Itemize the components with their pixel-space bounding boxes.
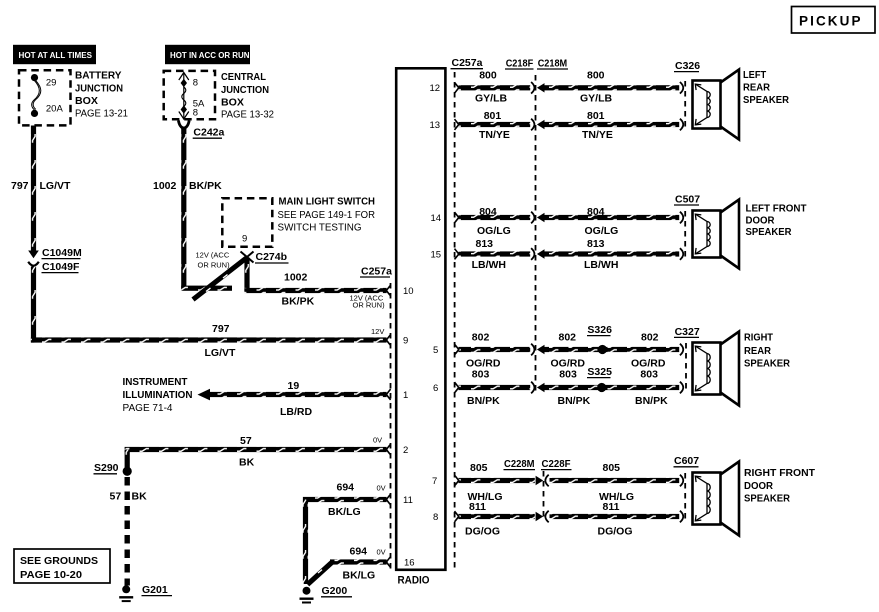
svg-text:C607: C607 xyxy=(674,455,699,467)
svg-text:7: 7 xyxy=(432,476,437,487)
svg-text:C218F: C218F xyxy=(506,57,534,69)
svg-text:SEE GROUNDS: SEE GROUNDS xyxy=(20,555,98,567)
svg-text:LG/VT: LG/VT xyxy=(40,180,72,192)
svg-text:INSTRUMENT: INSTRUMENT xyxy=(123,376,189,388)
svg-text:S325: S325 xyxy=(587,366,612,378)
svg-text:HOT AT ALL TIMES: HOT AT ALL TIMES xyxy=(19,51,93,60)
svg-text:9: 9 xyxy=(242,233,247,244)
svg-text:2: 2 xyxy=(403,445,408,456)
svg-text:GY/LB: GY/LB xyxy=(580,92,613,104)
svg-text:805: 805 xyxy=(470,462,488,474)
svg-text:SPEAKER: SPEAKER xyxy=(744,492,790,504)
svg-text:C274b: C274b xyxy=(256,251,288,263)
svg-text:OG/LG: OG/LG xyxy=(585,225,619,237)
svg-text:DOOR: DOOR xyxy=(744,480,773,492)
svg-text:MAIN LIGHT SWITCH: MAIN LIGHT SWITCH xyxy=(279,195,376,207)
svg-text:HOT IN ACC OR RUN: HOT IN ACC OR RUN xyxy=(170,51,250,60)
svg-text:CENTRAL: CENTRAL xyxy=(221,71,267,83)
svg-text:800: 800 xyxy=(587,70,605,82)
svg-text:BOX: BOX xyxy=(75,95,98,107)
svg-text:BN/PK: BN/PK xyxy=(558,395,591,407)
svg-text:801: 801 xyxy=(484,110,502,122)
svg-text:JUNCTION: JUNCTION xyxy=(221,84,269,96)
svg-text:BK/PK: BK/PK xyxy=(282,296,315,308)
svg-text:C257a: C257a xyxy=(452,57,483,69)
svg-text:G200: G200 xyxy=(322,585,348,597)
svg-text:LG/VT: LG/VT xyxy=(205,347,237,359)
svg-text:1: 1 xyxy=(403,390,408,401)
svg-text:BK: BK xyxy=(239,457,255,469)
svg-text:BK: BK xyxy=(132,490,148,502)
svg-text:SPEAKER: SPEAKER xyxy=(744,358,790,370)
svg-text:19: 19 xyxy=(288,380,300,392)
svg-text:GY/LB: GY/LB xyxy=(475,92,508,104)
svg-text:C242a: C242a xyxy=(193,126,224,138)
svg-text:RIGHT FRONT: RIGHT FRONT xyxy=(744,467,816,479)
svg-text:PAGE 13-32: PAGE 13-32 xyxy=(221,109,274,120)
svg-text:LB/WH: LB/WH xyxy=(472,259,506,271)
svg-text:797: 797 xyxy=(212,323,230,335)
svg-text:12: 12 xyxy=(430,83,441,94)
svg-text:14: 14 xyxy=(431,213,442,224)
svg-text:BN/PK: BN/PK xyxy=(467,395,500,407)
svg-text:S326: S326 xyxy=(587,324,612,336)
svg-text:57: 57 xyxy=(240,435,252,447)
svg-text:6: 6 xyxy=(433,383,438,394)
svg-text:0V: 0V xyxy=(373,435,382,444)
svg-text:10: 10 xyxy=(403,286,414,297)
svg-text:20A: 20A xyxy=(46,104,64,115)
svg-text:LEFT: LEFT xyxy=(743,69,767,81)
svg-text:C1049F: C1049F xyxy=(42,261,80,273)
svg-text:REAR: REAR xyxy=(744,345,771,357)
svg-text:8: 8 xyxy=(193,107,198,118)
svg-text:797: 797 xyxy=(11,180,29,192)
svg-text:C228M: C228M xyxy=(504,458,535,470)
svg-text:694: 694 xyxy=(337,481,355,493)
svg-text:LB/WH: LB/WH xyxy=(584,259,618,271)
svg-text:PICKUP: PICKUP xyxy=(799,13,863,28)
svg-text:C1049M: C1049M xyxy=(42,247,82,259)
svg-text:803: 803 xyxy=(559,369,577,381)
svg-text:C507: C507 xyxy=(675,193,700,205)
svg-text:57: 57 xyxy=(110,490,122,502)
svg-text:DG/OG: DG/OG xyxy=(465,526,500,538)
svg-text:13: 13 xyxy=(430,120,441,131)
svg-text:LB/RD: LB/RD xyxy=(280,406,312,418)
svg-text:802: 802 xyxy=(559,331,577,343)
svg-text:805: 805 xyxy=(603,462,621,474)
svg-text:804: 804 xyxy=(587,206,605,218)
svg-text:11: 11 xyxy=(403,495,413,506)
svg-text:0V: 0V xyxy=(377,483,386,492)
svg-text:PAGE 71-4: PAGE 71-4 xyxy=(123,403,173,414)
svg-text:12V: 12V xyxy=(371,327,384,336)
svg-text:C327: C327 xyxy=(675,326,700,338)
svg-text:16: 16 xyxy=(404,557,415,568)
svg-text:802: 802 xyxy=(472,331,490,343)
svg-text:811: 811 xyxy=(603,501,620,513)
svg-text:8: 8 xyxy=(433,512,438,523)
svg-text:813: 813 xyxy=(587,238,605,250)
svg-text:BK/LG: BK/LG xyxy=(328,506,361,518)
svg-text:803: 803 xyxy=(640,369,658,381)
svg-text:12V (ACC: 12V (ACC xyxy=(196,250,230,259)
svg-text:BK/PK: BK/PK xyxy=(189,180,222,192)
svg-text:9: 9 xyxy=(403,335,408,346)
svg-text:OG/LG: OG/LG xyxy=(477,225,511,237)
svg-text:RADIO: RADIO xyxy=(398,574,430,586)
svg-text:TN/YE: TN/YE xyxy=(479,129,510,141)
svg-text:804: 804 xyxy=(479,206,497,218)
svg-text:SPEAKER: SPEAKER xyxy=(746,226,792,238)
svg-text:S290: S290 xyxy=(94,462,119,474)
svg-text:803: 803 xyxy=(472,369,490,381)
svg-text:JUNCTION: JUNCTION xyxy=(75,83,123,95)
svg-text:SWITCH TESTING: SWITCH TESTING xyxy=(278,223,362,234)
svg-text:813: 813 xyxy=(476,238,494,250)
svg-text:C218M: C218M xyxy=(538,57,568,69)
svg-text:694: 694 xyxy=(350,546,368,558)
svg-text:800: 800 xyxy=(479,70,497,82)
svg-text:DOOR: DOOR xyxy=(746,214,775,226)
svg-text:OR RUN): OR RUN) xyxy=(198,260,231,269)
svg-text:8: 8 xyxy=(193,77,198,88)
svg-text:5: 5 xyxy=(433,345,438,356)
svg-text:C228F: C228F xyxy=(542,458,572,470)
svg-text:15: 15 xyxy=(431,249,442,260)
svg-text:0V: 0V xyxy=(377,548,386,557)
svg-text:C257a: C257a xyxy=(361,265,392,277)
svg-text:OR RUN): OR RUN) xyxy=(353,301,386,310)
svg-text:ILLUMINATION: ILLUMINATION xyxy=(123,389,193,401)
svg-text:SPEAKER: SPEAKER xyxy=(743,94,789,106)
svg-text:LEFT FRONT: LEFT FRONT xyxy=(746,202,808,214)
svg-text:802: 802 xyxy=(641,331,659,343)
svg-text:TN/YE: TN/YE xyxy=(582,129,613,141)
svg-text:REAR: REAR xyxy=(743,81,770,93)
svg-text:PAGE 10-20: PAGE 10-20 xyxy=(20,569,82,581)
svg-text:1002: 1002 xyxy=(284,271,308,283)
svg-text:DG/OG: DG/OG xyxy=(598,526,633,538)
svg-text:BOX: BOX xyxy=(221,96,244,108)
svg-text:G201: G201 xyxy=(142,584,168,596)
svg-text:811: 811 xyxy=(469,501,486,513)
svg-text:C326: C326 xyxy=(675,60,700,72)
svg-text:BATTERY: BATTERY xyxy=(75,70,122,82)
svg-text:PAGE 13-21: PAGE 13-21 xyxy=(75,108,128,119)
svg-text:801: 801 xyxy=(587,110,605,122)
svg-text:1002: 1002 xyxy=(153,180,177,192)
svg-text:BK/LG: BK/LG xyxy=(343,569,376,581)
svg-text:BN/PK: BN/PK xyxy=(635,395,668,407)
svg-text:29: 29 xyxy=(46,77,57,88)
svg-text:RIGHT: RIGHT xyxy=(744,331,774,343)
svg-text:SEE PAGE 149-1 FOR: SEE PAGE 149-1 FOR xyxy=(278,210,376,221)
